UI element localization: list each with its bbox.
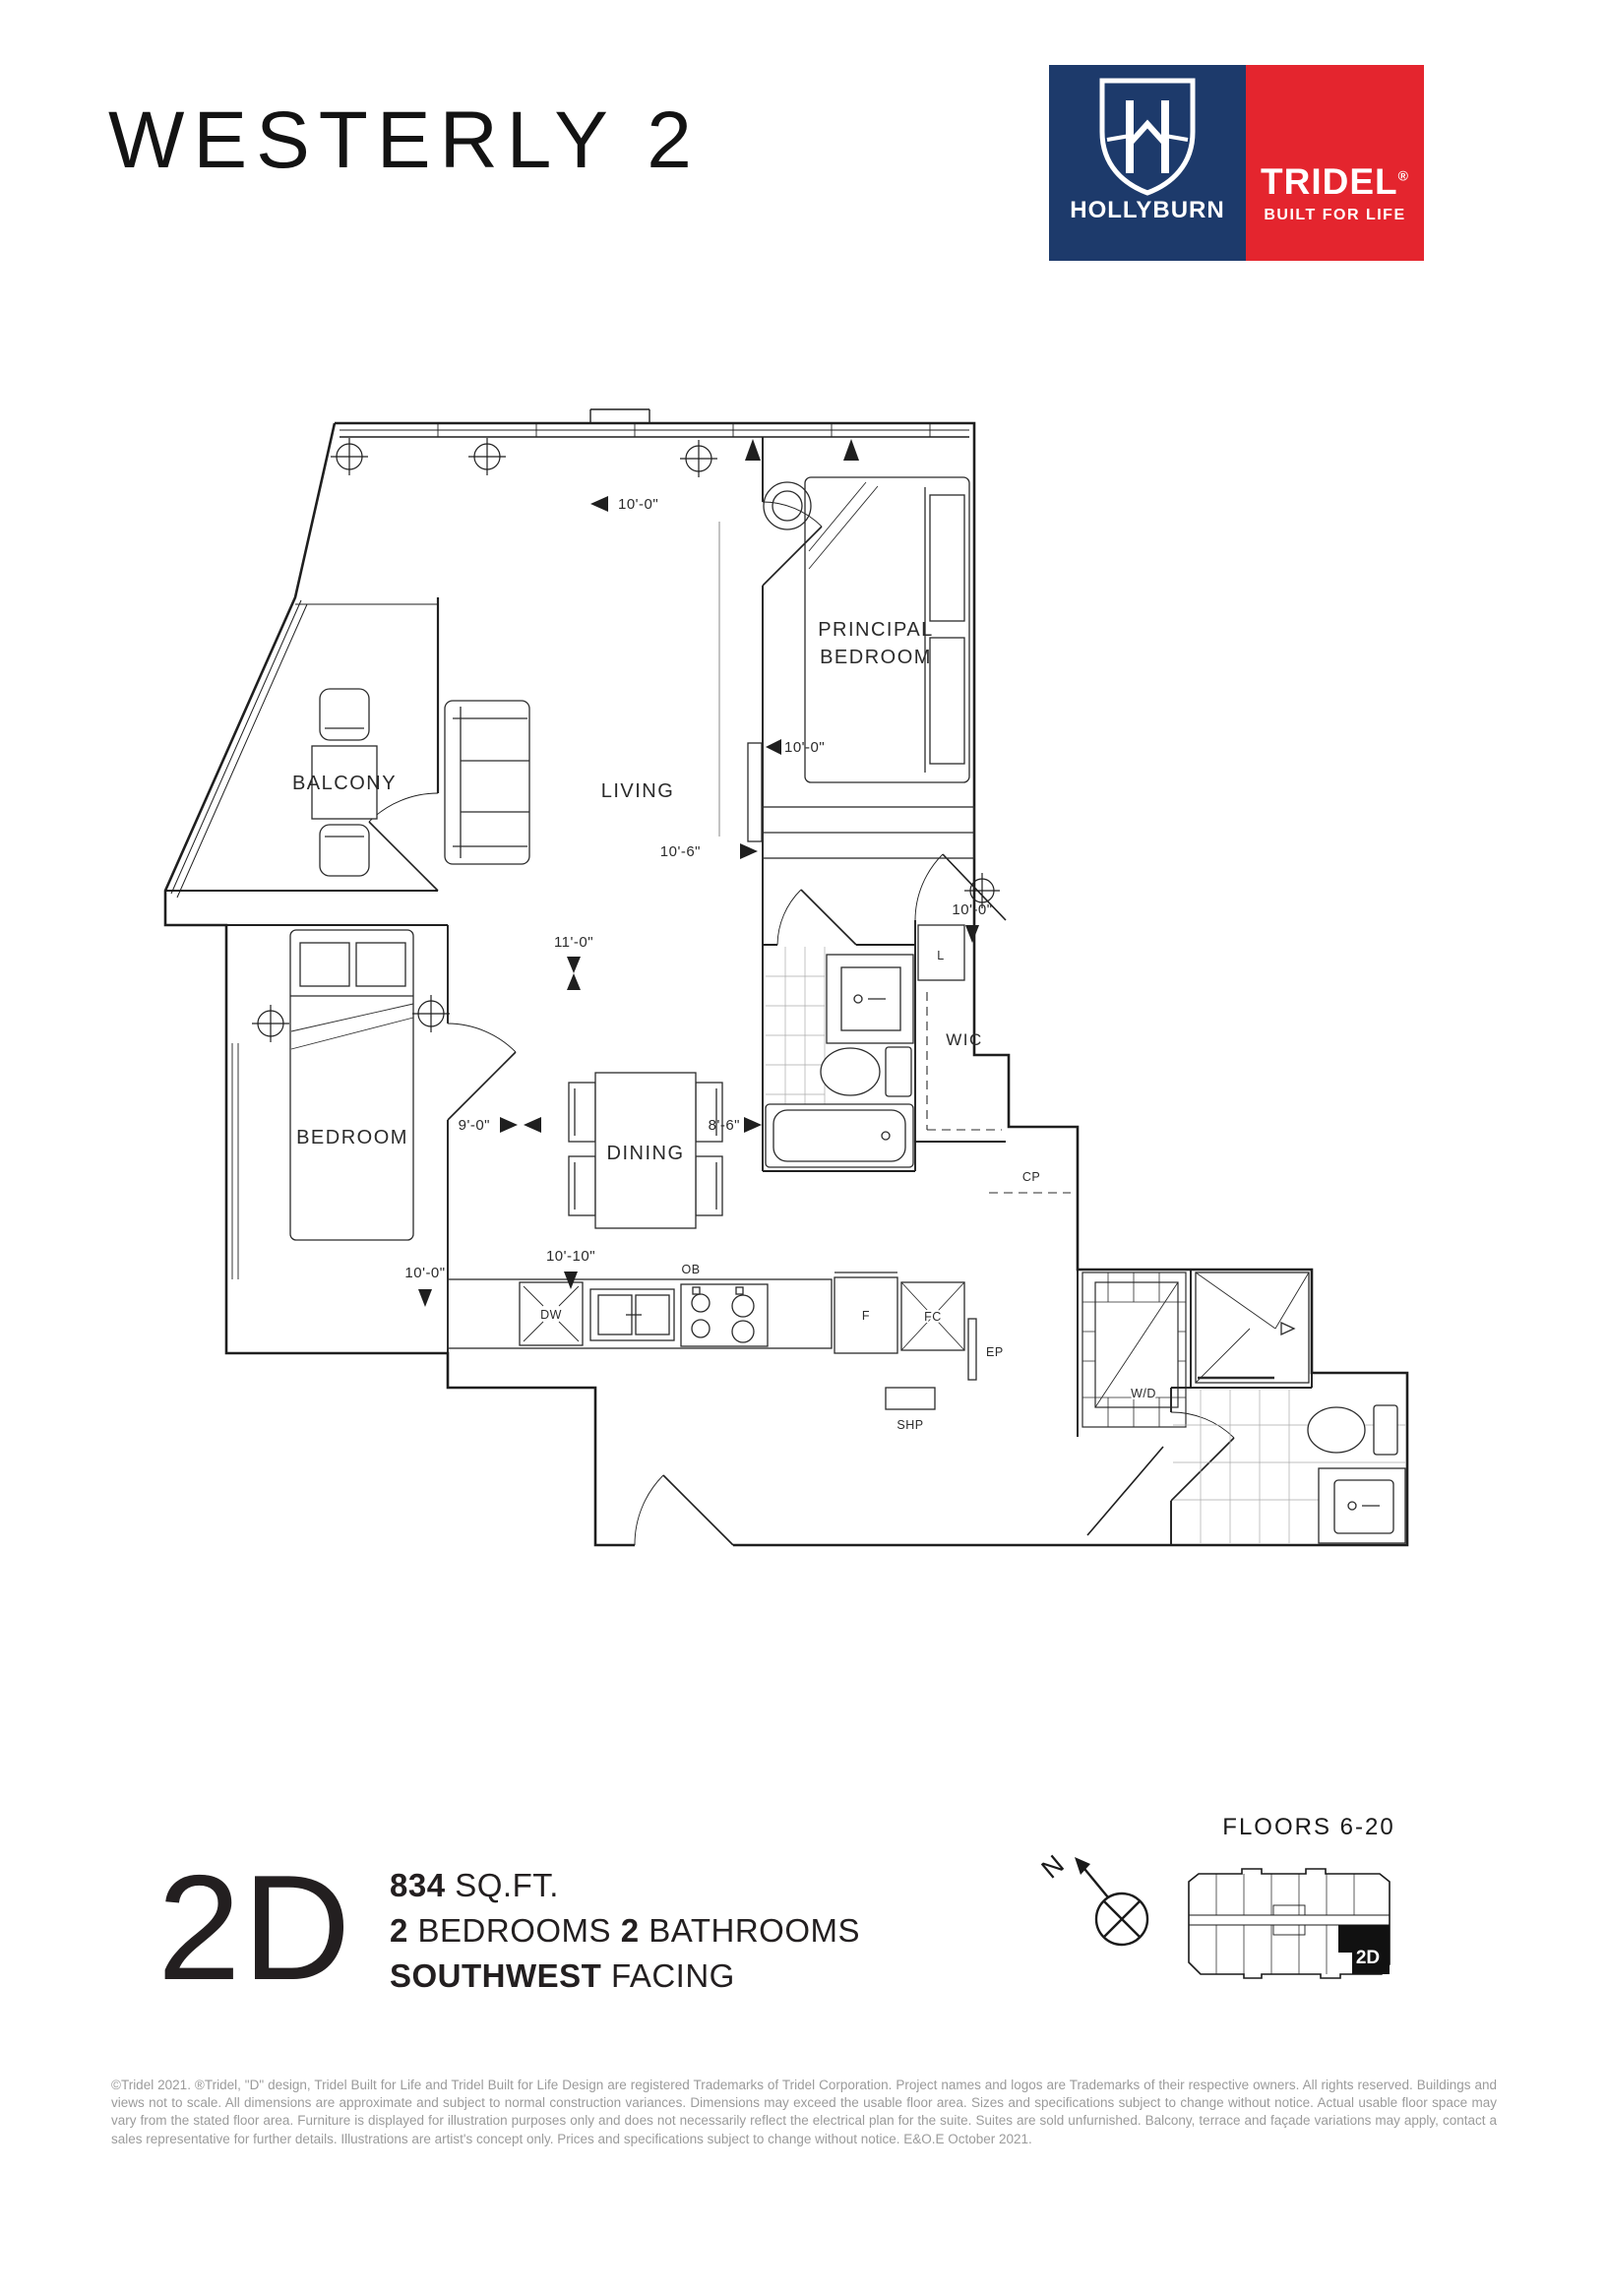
dim-dining-width: 8'-6" bbox=[709, 1117, 740, 1134]
floorplan-page: WESTERLY 2 HOLLYBURN TRIDEL® BUILT FOR L… bbox=[0, 0, 1607, 2296]
principal-bedroom-label-1: PRINCIPAL bbox=[818, 619, 934, 641]
shp-label: SHP bbox=[896, 1418, 923, 1432]
balcony-label: BALCONY bbox=[292, 773, 397, 794]
living-label: LIVING bbox=[601, 780, 675, 802]
bedroom-furniture bbox=[290, 930, 413, 1240]
compass-north-label: N bbox=[1036, 1849, 1070, 1885]
project-title: WESTERLY 2 bbox=[108, 94, 701, 187]
bedrooms-value: 2 bbox=[390, 1912, 408, 1949]
registered-mark: ® bbox=[1398, 168, 1409, 184]
tridel-wordmark: TRIDEL bbox=[1261, 161, 1398, 202]
floorplan-drawing: BALCONY LIVING PRINCIPAL BEDROOM bbox=[98, 394, 1447, 1575]
tridel-logo: TRIDEL® BUILT FOR LIFE bbox=[1246, 65, 1424, 261]
dim-bedroom-depth: 11'-0" bbox=[554, 934, 593, 951]
linen-label: L bbox=[937, 949, 944, 962]
dim-hall-width: 9'-0" bbox=[459, 1117, 490, 1134]
suite-summary: 834 SQ.FT. 2 BEDROOMS 2 BATHROOMS SOUTHW… bbox=[390, 1863, 860, 1999]
bedroom-window bbox=[232, 1043, 238, 1279]
hollyburn-logo: HOLLYBURN bbox=[1049, 65, 1246, 261]
dim-wic-width: 10'-0" bbox=[952, 901, 992, 918]
dining-label: DINING bbox=[607, 1143, 685, 1164]
dim-living-depth: 10'-6" bbox=[660, 843, 701, 860]
keyplan-title: FLOORS 6-20 bbox=[1222, 1814, 1394, 1840]
legal-disclaimer: ©Tridel 2021. ®Tridel, "D" design, Tride… bbox=[111, 2077, 1497, 2148]
keyplan-building: 2D bbox=[1189, 1869, 1390, 1978]
dim-living-width: 10'-0" bbox=[618, 496, 658, 513]
tridel-tagline: BUILT FOR LIFE bbox=[1246, 207, 1424, 224]
second-bath bbox=[1173, 1390, 1405, 1543]
unit-code: 2D bbox=[157, 1842, 352, 2015]
shower bbox=[1196, 1272, 1309, 1383]
hollyburn-shield-icon bbox=[1049, 65, 1246, 261]
facing-label: FACING bbox=[611, 1957, 735, 1994]
main-bath bbox=[766, 947, 913, 1167]
facing-line: SOUTHWEST FACING bbox=[390, 1954, 860, 1999]
keyplan: FLOORS 6-20 N 2D bbox=[1023, 1803, 1515, 2039]
cp-label: CP bbox=[1022, 1170, 1040, 1184]
wic-label: WIC bbox=[946, 1030, 983, 1049]
wic bbox=[918, 925, 1002, 1130]
balcony-glazing bbox=[165, 597, 438, 898]
living-furniture bbox=[445, 482, 811, 864]
sqft-line: 834 SQ.FT. bbox=[390, 1863, 860, 1908]
sqft-value: 834 bbox=[390, 1867, 446, 1903]
keyplan-unit-label: 2D bbox=[1356, 1948, 1380, 1968]
sqft-label: SQ.FT. bbox=[455, 1867, 559, 1903]
dim-kitchen-width: 10'-10" bbox=[546, 1248, 595, 1265]
dim-bedroom-width: 10'-0" bbox=[404, 1265, 445, 1281]
bedrooms-label: BEDROOMS bbox=[418, 1912, 612, 1949]
compass-icon bbox=[1075, 1857, 1147, 1945]
principal-bedroom-label-2: BEDROOM bbox=[820, 647, 932, 668]
interior-walls bbox=[226, 437, 1312, 1545]
facing-value: SOUTHWEST bbox=[390, 1957, 601, 1994]
bathrooms-value: 2 bbox=[621, 1912, 640, 1949]
ceiling-fixture-icons bbox=[252, 438, 1000, 1042]
hollyburn-name: HOLLYBURN bbox=[1049, 197, 1246, 224]
wd-label: W/D bbox=[1131, 1387, 1156, 1400]
bed-bath-line: 2 BEDROOMS 2 BATHROOMS bbox=[390, 1908, 860, 1954]
fridge-label: F bbox=[862, 1309, 870, 1323]
dw-label: DW bbox=[540, 1308, 562, 1322]
bathrooms-label: BATHROOMS bbox=[649, 1912, 860, 1949]
dim-principal-width: 10'-0" bbox=[784, 739, 825, 756]
bedroom-label: BEDROOM bbox=[296, 1127, 408, 1148]
fan-coil-label: FC bbox=[924, 1310, 942, 1324]
tridel-name: TRIDEL® bbox=[1246, 161, 1424, 203]
ep-label: EP bbox=[986, 1345, 1004, 1359]
ob-label: OB bbox=[681, 1263, 700, 1276]
